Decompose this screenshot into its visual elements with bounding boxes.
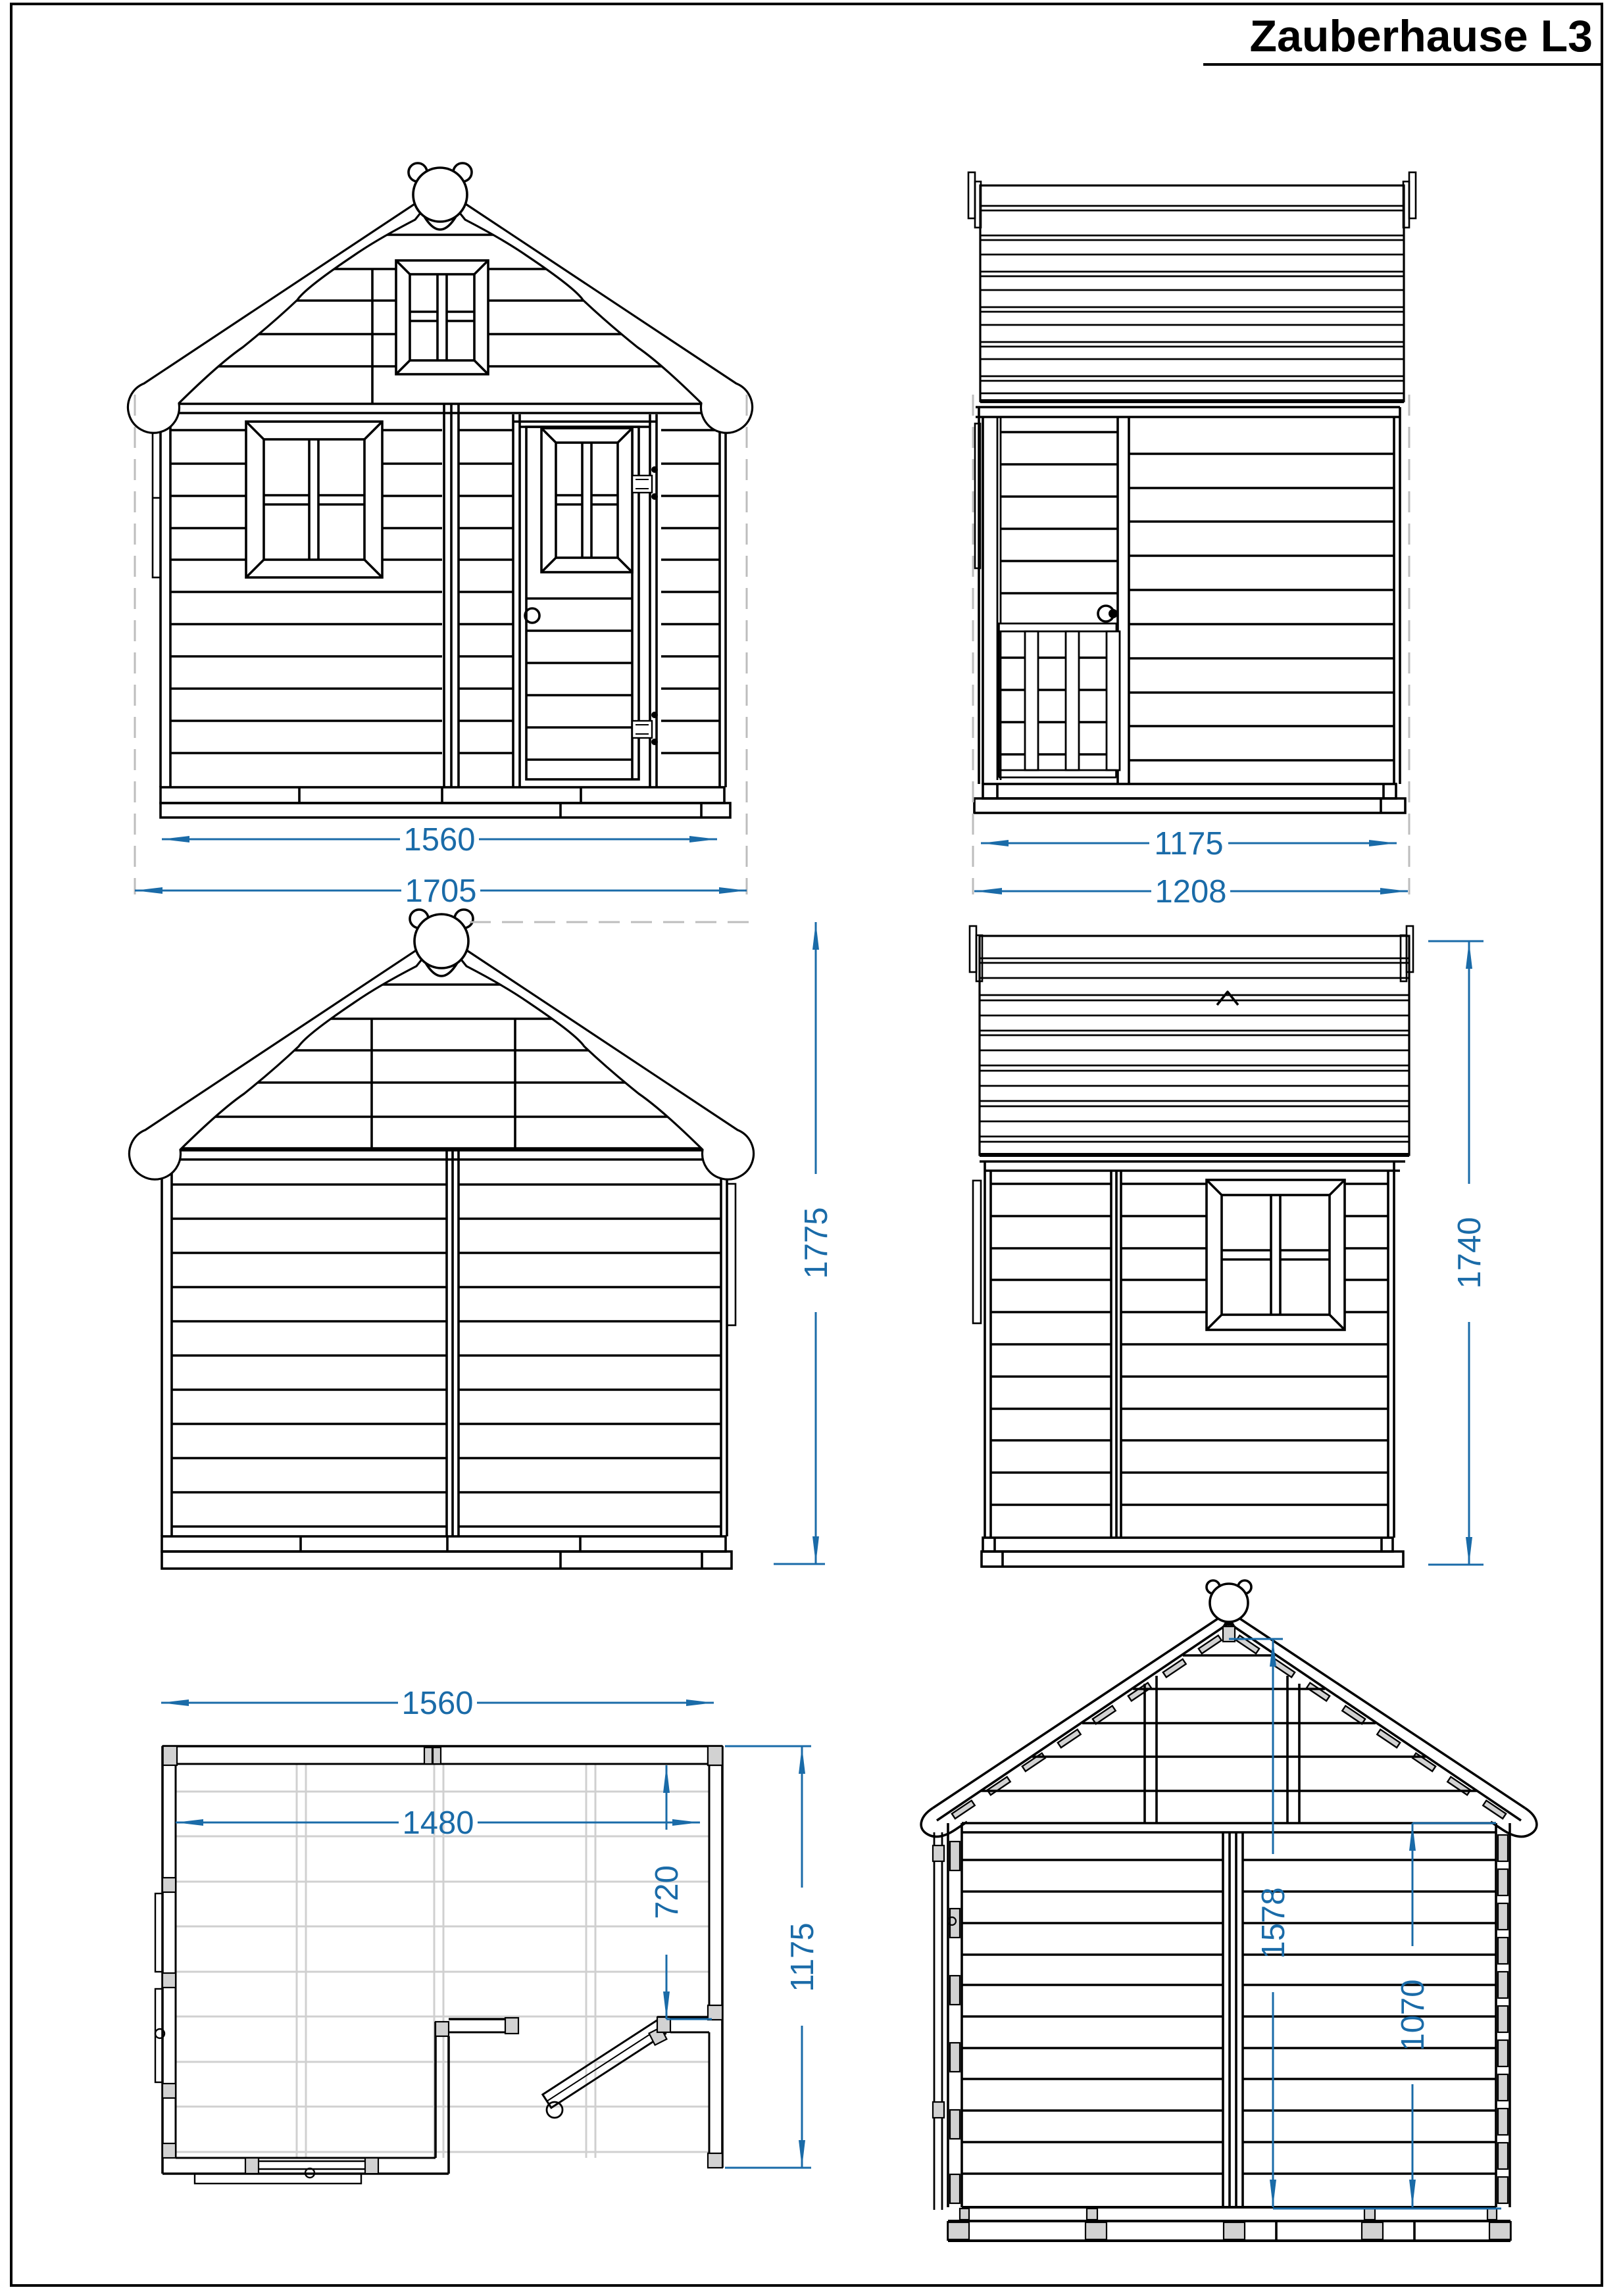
svg-text:1560: 1560 bbox=[403, 822, 475, 858]
svg-text:720: 720 bbox=[649, 1865, 685, 1919]
svg-text:Zauberhause L3: Zauberhause L3 bbox=[1250, 11, 1593, 61]
svg-text:1208: 1208 bbox=[1155, 874, 1226, 910]
svg-text:1070: 1070 bbox=[1395, 1979, 1431, 2051]
svg-text:1175: 1175 bbox=[1154, 826, 1223, 862]
svg-text:1740: 1740 bbox=[1452, 1217, 1487, 1288]
svg-text:1175: 1175 bbox=[785, 1922, 820, 1991]
svg-text:1578: 1578 bbox=[1256, 1887, 1291, 1959]
svg-text:1775: 1775 bbox=[799, 1207, 834, 1279]
svg-text:1705: 1705 bbox=[405, 873, 476, 909]
svg-text:1560: 1560 bbox=[401, 1686, 473, 1721]
svg-text:1480: 1480 bbox=[402, 1805, 474, 1841]
